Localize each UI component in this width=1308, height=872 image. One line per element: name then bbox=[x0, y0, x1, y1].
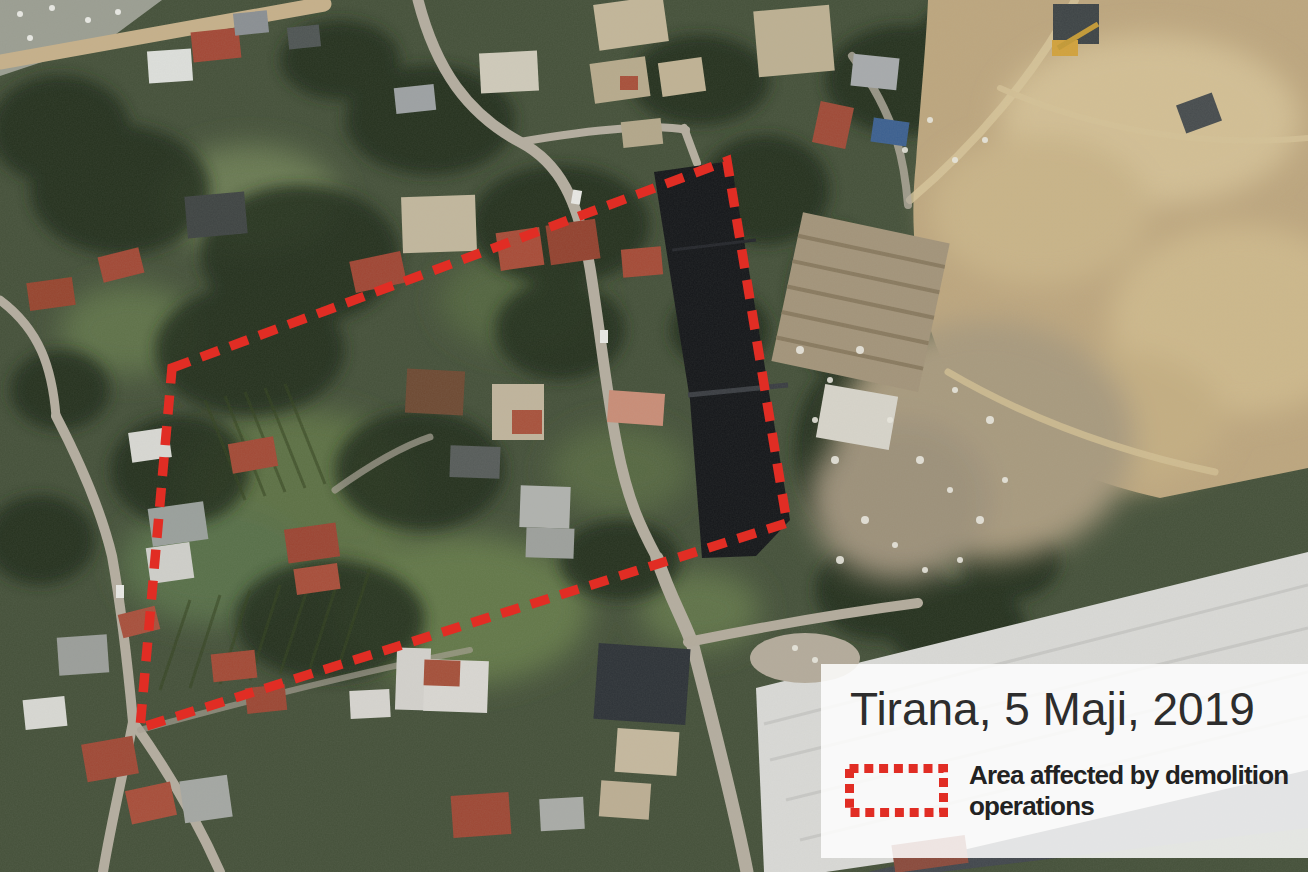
legend-dashed-rect-icon bbox=[845, 764, 948, 817]
legend-swatch-rect bbox=[850, 769, 944, 813]
annotated-satellite-image: Tirana, 5 Maji, 2019 Area affected by de… bbox=[0, 0, 1308, 872]
info-card-title: Tirana, 5 Maji, 2019 bbox=[850, 684, 1308, 735]
legend-row: Area affected by demolition operations bbox=[845, 760, 1308, 822]
info-card: Tirana, 5 Maji, 2019 Area affected by de… bbox=[821, 664, 1308, 858]
legend-label: Area affected by demolition operations bbox=[969, 760, 1303, 822]
